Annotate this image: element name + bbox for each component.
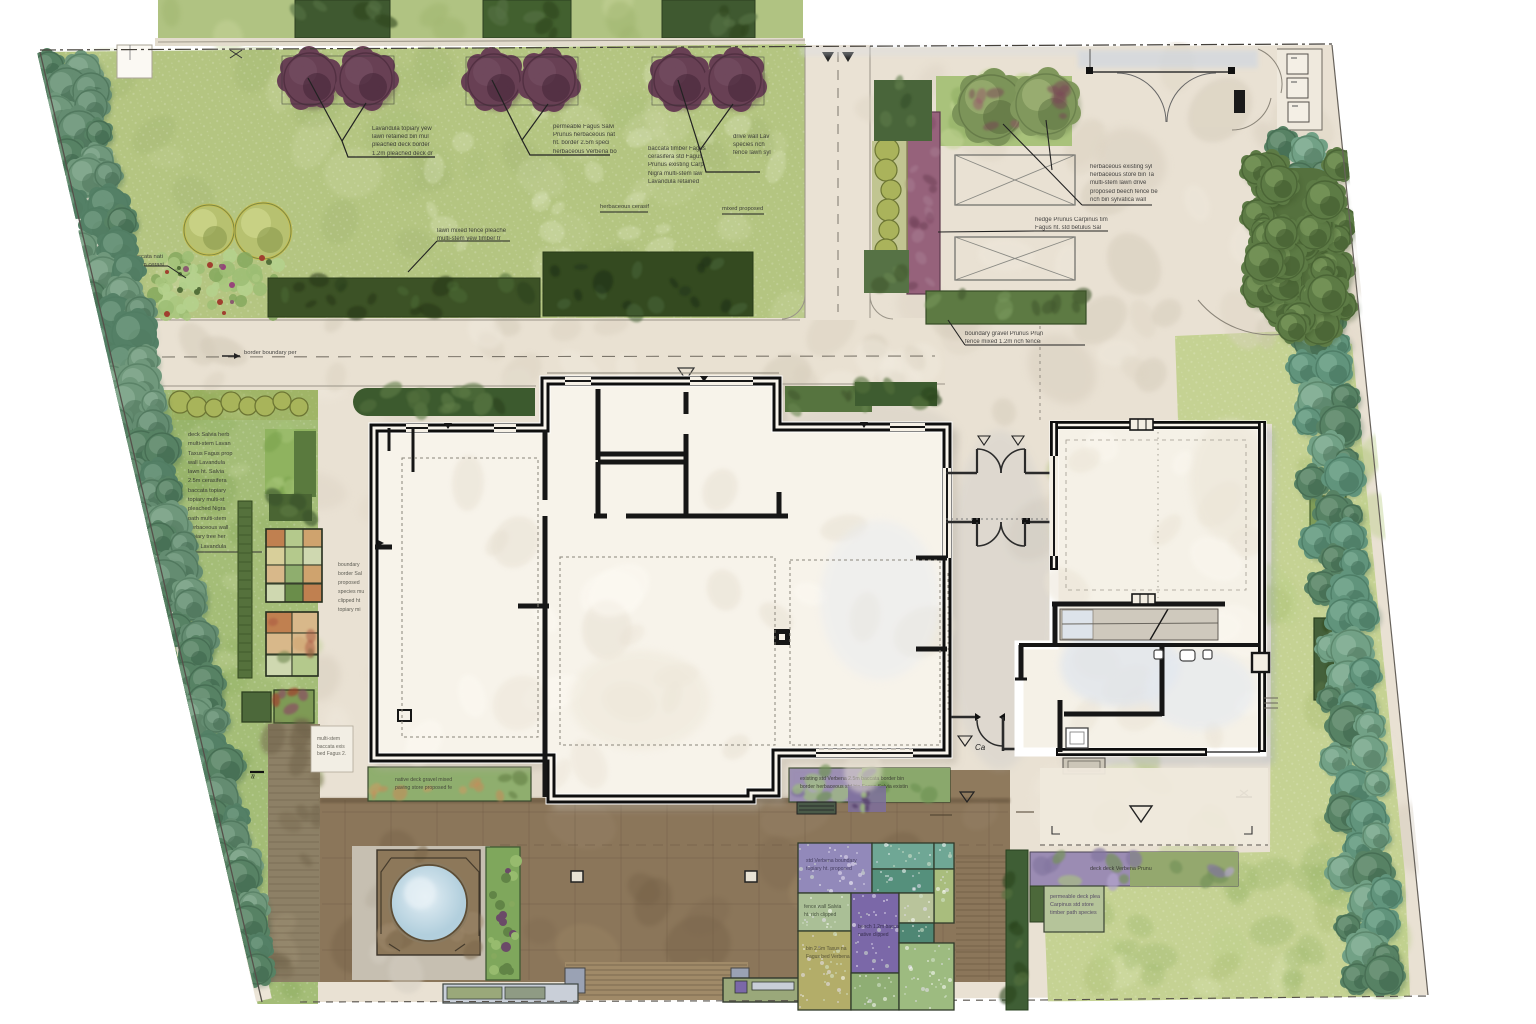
svg-text:baccata timber Fagus: baccata timber Fagus	[648, 146, 706, 152]
svg-text:boundary gravel Prunus Prun: boundary gravel Prunus Prun	[965, 331, 1043, 337]
svg-text:deck deck Verbena Prunu: deck deck Verbena Prunu	[1090, 866, 1152, 872]
svg-text:hedge Prunus Carpinus tim: hedge Prunus Carpinus tim	[1035, 217, 1108, 223]
svg-text:drive wall Lav: drive wall Lav	[733, 134, 769, 140]
svg-text:path multi-stem: path multi-stem	[188, 516, 227, 522]
svg-text:herbaceous existing syl: herbaceous existing syl	[1090, 164, 1152, 170]
svg-text:Fagus bed Verbena: Fagus bed Verbena	[806, 954, 850, 960]
svg-text:boundary: boundary	[338, 562, 360, 568]
svg-text:mixed proposed: mixed proposed	[722, 206, 763, 212]
svg-text:herbaceous store bin Ta: herbaceous store bin Ta	[1090, 172, 1155, 178]
svg-text:lawn retained bin mul: lawn retained bin mul	[372, 134, 429, 140]
svg-text:fence wall Salvia: fence wall Salvia	[804, 904, 841, 910]
svg-text:species rich: species rich	[733, 142, 765, 148]
svg-text:beech 1.2m bacca: beech 1.2m bacca	[858, 924, 899, 930]
svg-text:baccata topiary: baccata topiary	[188, 488, 226, 494]
svg-text:Lavandula topiary yew: Lavandula topiary yew	[372, 126, 432, 132]
svg-text:timber path species: timber path species	[1050, 910, 1097, 916]
svg-text:fence mixed 1.2m rich fence: fence mixed 1.2m rich fence	[965, 339, 1041, 345]
svg-text:fence lawn syl: fence lawn syl	[733, 150, 771, 156]
svg-text:≈: ≈	[248, 774, 258, 779]
svg-text:Ca: Ca	[975, 743, 986, 752]
svg-text:lawn ht. Salvia: lawn ht. Salvia	[188, 469, 225, 475]
svg-text:topiary ht. proposed: topiary ht. proposed	[806, 866, 852, 872]
svg-text:std Verbena boundary: std Verbena boundary	[806, 858, 857, 864]
svg-text:Prunus existing Carp: Prunus existing Carp	[648, 162, 704, 168]
svg-text:permeable Fagus Salvi: permeable Fagus Salvi	[553, 124, 614, 130]
svg-text:herbaceous cerasif: herbaceous cerasif	[600, 204, 649, 210]
svg-text:Nigra multi-stem law: Nigra multi-stem law	[648, 171, 703, 177]
svg-text:proposed: proposed	[338, 580, 360, 586]
svg-text:proposed beech fence be: proposed beech fence be	[1090, 189, 1158, 195]
svg-text:border boundary per: border boundary per	[244, 350, 297, 356]
svg-text:1.2m pleached deck dr: 1.2m pleached deck dr	[372, 151, 433, 157]
svg-text:multi-stem: multi-stem	[317, 736, 340, 742]
svg-text:ht. border 2.5m speci: ht. border 2.5m speci	[553, 140, 609, 146]
svg-text:Carpinus std store: Carpinus std store	[1050, 902, 1094, 908]
svg-text:ht. rich clipped: ht. rich clipped	[804, 912, 836, 918]
svg-text:lawn mixed fence pleache: lawn mixed fence pleache	[437, 228, 507, 234]
svg-text:Taxus Fagus prop: Taxus Fagus prop	[188, 451, 232, 457]
svg-text:herbaceous Verbena bo: herbaceous Verbena bo	[553, 149, 617, 155]
svg-text:rich bin sylvatica wall: rich bin sylvatica wall	[1090, 197, 1146, 203]
svg-text:herbaceous wall: herbaceous wall	[188, 525, 228, 531]
svg-text:native deck gravel mixed: native deck gravel mixed	[395, 777, 452, 783]
svg-text:multi-stem lawn drive: multi-stem lawn drive	[1090, 180, 1147, 186]
svg-text:topiary mi: topiary mi	[338, 607, 361, 613]
svg-text:bin 2.5m Taxus na: bin 2.5m Taxus na	[806, 946, 847, 952]
svg-text:bed Fagus 2.: bed Fagus 2.	[317, 751, 346, 757]
svg-text:species mu: species mu	[338, 589, 364, 595]
svg-text:Prunus herbaceous nat: Prunus herbaceous nat	[553, 132, 615, 138]
svg-text:native clipped: native clipped	[858, 932, 889, 938]
svg-text:topiary multi-st: topiary multi-st	[188, 497, 225, 503]
svg-text:deck Salvia herb: deck Salvia herb	[188, 432, 229, 438]
svg-text:border Sal: border Sal	[338, 571, 362, 577]
svg-text:multi-stem Lavan: multi-stem Lavan	[188, 441, 231, 447]
svg-text:2.5m cerasifera: 2.5m cerasifera	[188, 478, 227, 484]
svg-text:Lavandula retained: Lavandula retained	[648, 179, 699, 185]
svg-text:cerasifera std Fagus: cerasifera std Fagus	[648, 154, 702, 160]
svg-text:clipped ht: clipped ht	[338, 598, 361, 604]
svg-text:baccata exis: baccata exis	[317, 744, 345, 750]
svg-text:pleached Nigra: pleached Nigra	[188, 506, 227, 512]
svg-text:permeable deck plea: permeable deck plea	[1050, 894, 1100, 900]
svg-text:paving store proposed fe: paving store proposed fe	[395, 785, 452, 791]
svg-text:pleached deck border: pleached deck border	[372, 142, 430, 148]
svg-text:wall Lavandula: wall Lavandula	[187, 460, 226, 466]
svg-text:Fagus ht. std betulus Sal: Fagus ht. std betulus Sal	[1035, 225, 1101, 231]
